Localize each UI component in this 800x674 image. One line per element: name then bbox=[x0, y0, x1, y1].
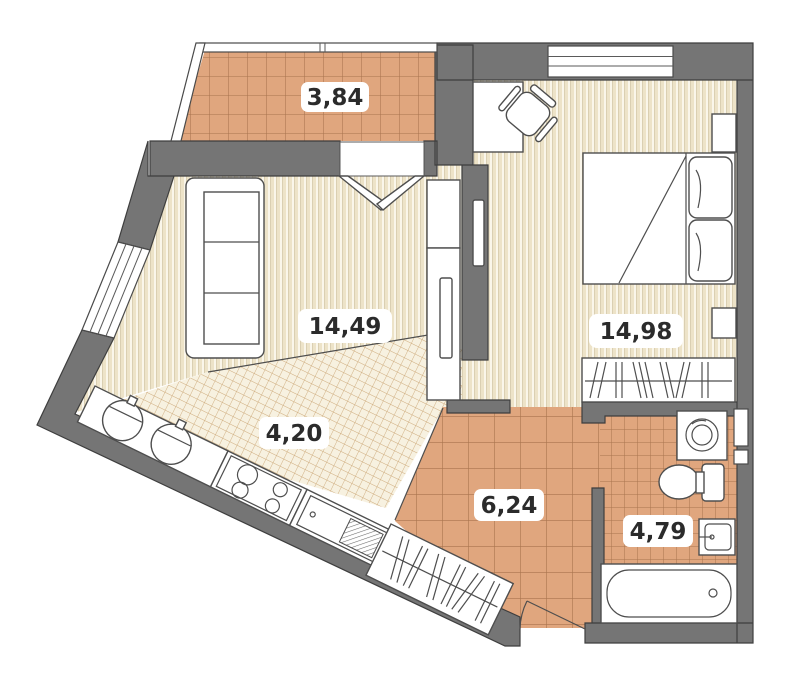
bathroom-area-value: 4,79 bbox=[630, 519, 687, 545]
living-room-area-value: 14,49 bbox=[309, 314, 382, 340]
label-balcony: 3,84 bbox=[301, 82, 369, 112]
toilet bbox=[659, 464, 724, 501]
pillow bbox=[689, 157, 732, 218]
bathtub bbox=[601, 564, 737, 623]
label-hallway: 6,24 bbox=[474, 489, 544, 521]
cabinet bbox=[427, 180, 460, 248]
balcony-area-value: 3,84 bbox=[307, 85, 364, 111]
label-bathroom: 4,79 bbox=[623, 515, 693, 547]
tv-bedroom bbox=[473, 200, 484, 266]
nightstand bbox=[712, 114, 736, 152]
bedroom-wardrobe bbox=[582, 358, 735, 402]
bathroom-sink bbox=[699, 519, 735, 555]
label-living-room: 14,49 bbox=[298, 309, 392, 343]
toilet-bowl bbox=[659, 465, 699, 499]
tv-cabinet-column bbox=[427, 180, 460, 400]
sofa bbox=[186, 178, 264, 358]
pillow bbox=[689, 220, 732, 281]
balcony-glazing-top bbox=[200, 43, 437, 52]
washing-machine-body bbox=[677, 411, 727, 460]
toilet-tank bbox=[702, 464, 724, 501]
floor-plan-page: 3,84 14,49 14,98 4,20 6,24 4,79 bbox=[0, 0, 800, 674]
bed bbox=[583, 153, 735, 284]
balcony-door-opening bbox=[340, 142, 424, 176]
bedroom-window bbox=[548, 46, 673, 77]
nightstand bbox=[712, 308, 736, 338]
label-bedroom: 14,98 bbox=[589, 314, 683, 348]
sofa-cushions bbox=[204, 192, 259, 344]
bedroom-area-value: 14,98 bbox=[600, 319, 673, 345]
wall-niche bbox=[734, 450, 748, 464]
tv-living-room bbox=[440, 278, 452, 358]
kitchen-area-value: 4,20 bbox=[266, 421, 323, 447]
washing-machine bbox=[677, 411, 727, 460]
floor-plan-canvas: 3,84 14,49 14,98 4,20 6,24 4,79 bbox=[0, 0, 800, 674]
toilet-seat-joint bbox=[696, 472, 704, 493]
label-kitchen: 4,20 bbox=[259, 417, 329, 449]
wall-niche bbox=[734, 409, 748, 446]
hallway-area-value: 6,24 bbox=[481, 493, 538, 519]
